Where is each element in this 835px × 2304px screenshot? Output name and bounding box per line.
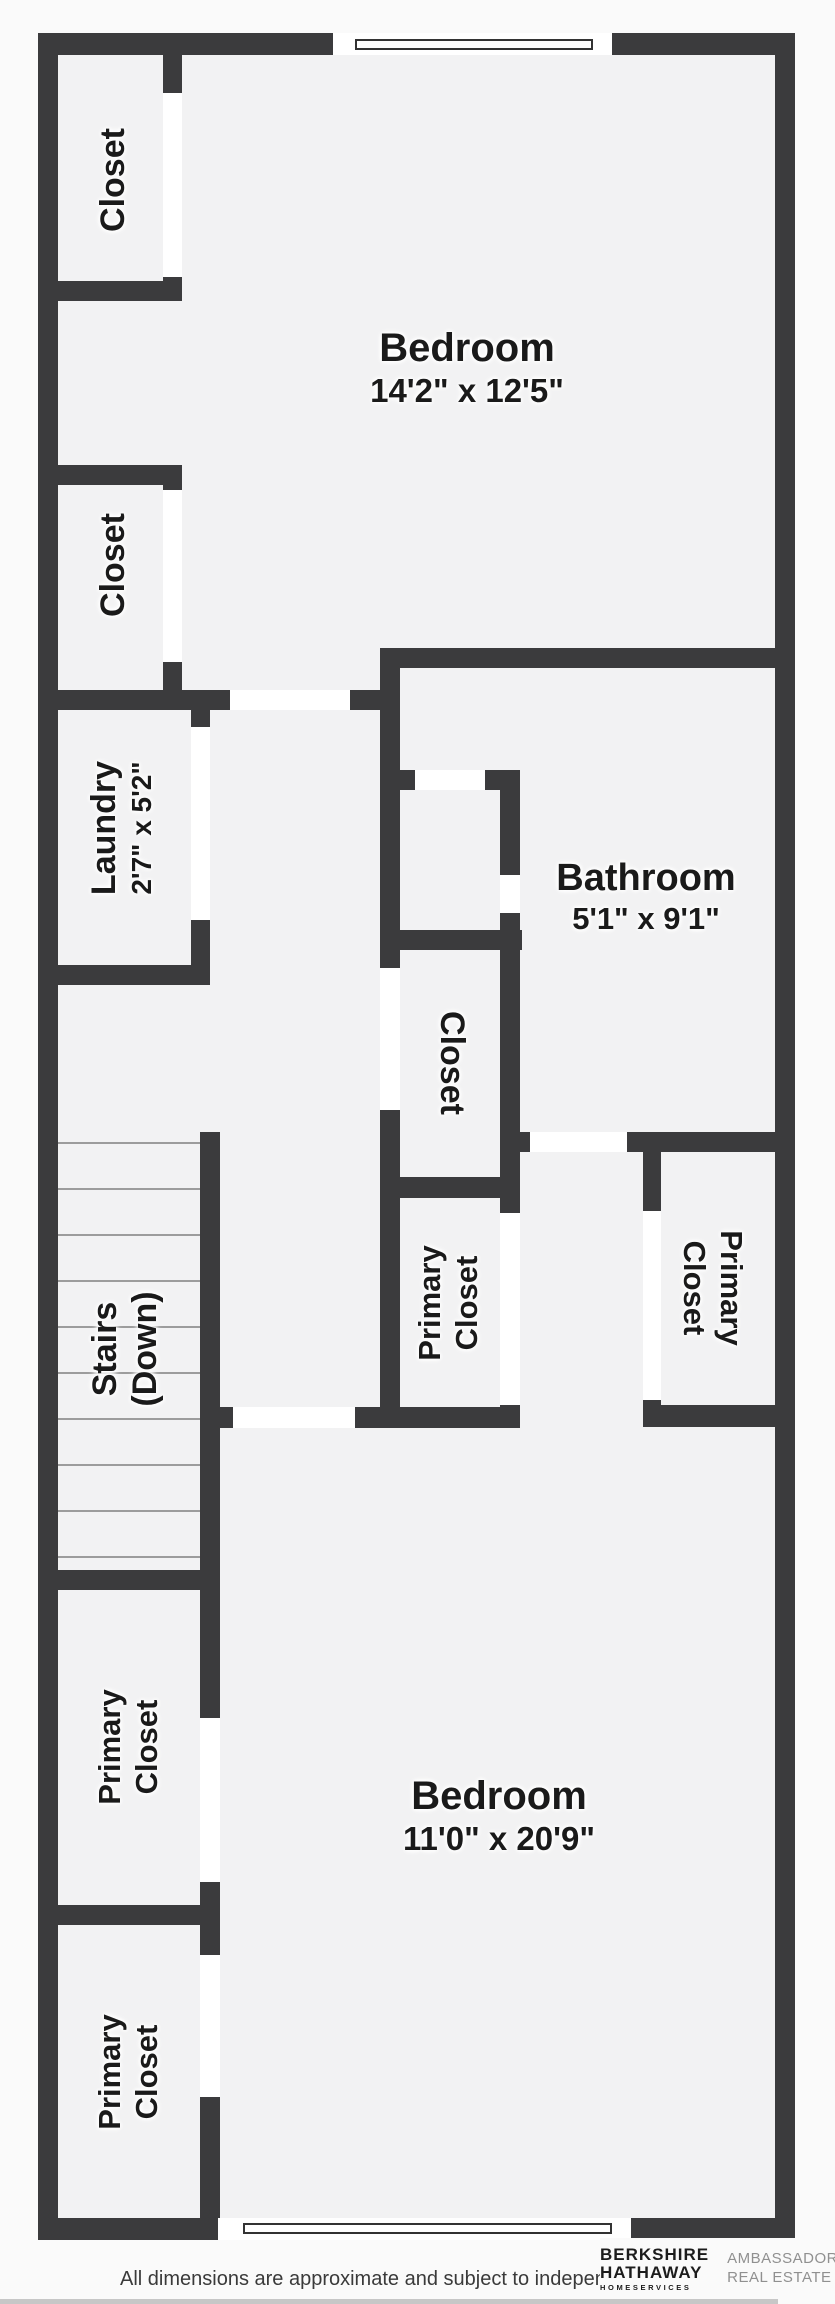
door-opening-laundry [191, 727, 210, 920]
room-label-primary-closet-b2: Primary Closet [97, 1962, 161, 2182]
room-dimensions: 11'0" x 20'9" [403, 1820, 595, 1859]
room-label-primary-closet-mid: Primary Closet [417, 1203, 481, 1403]
door-opening-bedroom-bottom [233, 1407, 355, 1428]
room-label-laundry: Laundry 2'7" x 5'2" [86, 718, 156, 938]
door-opening-bathroom [530, 1132, 627, 1152]
window-bottom [243, 2223, 612, 2234]
wall-closet-a-bottom [38, 281, 182, 301]
door-opening-closet-a [163, 93, 182, 277]
wall-closet-b-top [38, 465, 182, 485]
room-dimensions: 5'1" x 9'1" [572, 901, 720, 938]
logo-agency-block: AMBASSADOR REAL ESTATE [727, 2250, 835, 2288]
room-label-closet-mid: Closet [432, 973, 472, 1153]
door-opening-closet-b [163, 490, 182, 662]
room-label-bedroom-top: Bedroom 14'2" x 12'5" [317, 323, 617, 413]
door-opening-shower [415, 770, 485, 790]
wall-primary-closet-right-bottom [643, 1405, 795, 1427]
door-opening-bedroom-top [230, 690, 350, 710]
room-name: Closet [93, 513, 133, 617]
room-dimensions: 2'7" x 5'2" [125, 761, 158, 894]
logo-brand-line2: HATHAWAY [600, 2264, 709, 2282]
berkshire-hathaway-logo: BERKSHIRE HATHAWAY HOMESERVICES AMBASSAD… [600, 2238, 835, 2300]
door-opening-pc2 [200, 1955, 220, 2097]
door-opening-primary-closet-mid [500, 1213, 520, 1405]
wall-bedroom-top-bottom [380, 648, 795, 668]
door-opening-pc1 [200, 1718, 220, 1882]
room-name: Laundry [84, 761, 124, 895]
room-name-line2: Closet [449, 1256, 486, 1351]
wall-pc1-top [38, 1570, 220, 1590]
wall-closet-mid-top [380, 930, 522, 950]
door-opening-primary-closet-right [643, 1211, 661, 1400]
room-label-stairs: Stairs (Down) [87, 1239, 163, 1459]
logo-agency-line1: AMBASSADOR [727, 2250, 835, 2269]
window-top [355, 39, 593, 50]
stair-step-line [58, 1510, 200, 1512]
logo-brand-line3: HOMESERVICES [600, 2283, 709, 2292]
stair-step-line [58, 1142, 200, 1144]
floor-plan-page: Closet Closet Laundry 2'7" x 5'2" Bedroo… [0, 0, 835, 2304]
room-label-bathroom: Bathroom 5'1" x 9'1" [506, 855, 786, 939]
room-name: Bathroom [556, 856, 735, 901]
room-name-line2: (Down) [125, 1291, 165, 1406]
room-name-line1: Primary [712, 1230, 749, 1345]
room-label-bedroom-bottom: Bedroom 11'0" x 20'9" [349, 1771, 649, 1861]
disclaimer-text: All dimensions are approximate and subje… [120, 2268, 645, 2291]
room-name-line1: Stairs [85, 1302, 125, 1397]
room-name: Bedroom [411, 1773, 587, 1820]
bottom-section-divider [0, 2299, 778, 2304]
room-label-primary-closet-b1: Primary Closet [97, 1637, 161, 1857]
room-name: Bedroom [379, 325, 555, 372]
room-name-line1: Primary [92, 1689, 129, 1804]
room-dimensions: 14'2" x 12'5" [370, 372, 564, 411]
stair-step-line [58, 1556, 200, 1558]
wall-stairs-right [200, 1132, 220, 1590]
room-name: Closet [93, 128, 133, 232]
wall-pc1-bottom [38, 1905, 220, 1925]
room-name-line1: Primary [412, 1245, 449, 1360]
room-name: Closet [432, 1011, 472, 1115]
wall-laundry-bottom [38, 965, 210, 985]
room-name-line1: Primary [92, 2014, 129, 2129]
logo-agency-line2: REAL ESTATE [727, 2269, 835, 2288]
room-label-closet-a: Closet [93, 100, 133, 260]
wall-closet-mid-bottom [380, 1177, 520, 1198]
room-label-primary-closet-right: Primary Closet [680, 1188, 744, 1388]
room-name-line2: Closet [129, 2025, 166, 2120]
stair-step-line [58, 1464, 200, 1466]
stair-step-line [58, 1188, 200, 1190]
room-name-line2: Closet [675, 1241, 712, 1336]
stair-step-line [58, 1234, 200, 1236]
logo-brand-line1: BERKSHIRE [600, 2246, 709, 2264]
door-opening-closet-mid [380, 968, 400, 1110]
room-name-line2: Closet [129, 1700, 166, 1795]
room-label-closet-b: Closet [93, 485, 133, 645]
logo-brand-block: BERKSHIRE HATHAWAY HOMESERVICES [600, 2246, 709, 2293]
